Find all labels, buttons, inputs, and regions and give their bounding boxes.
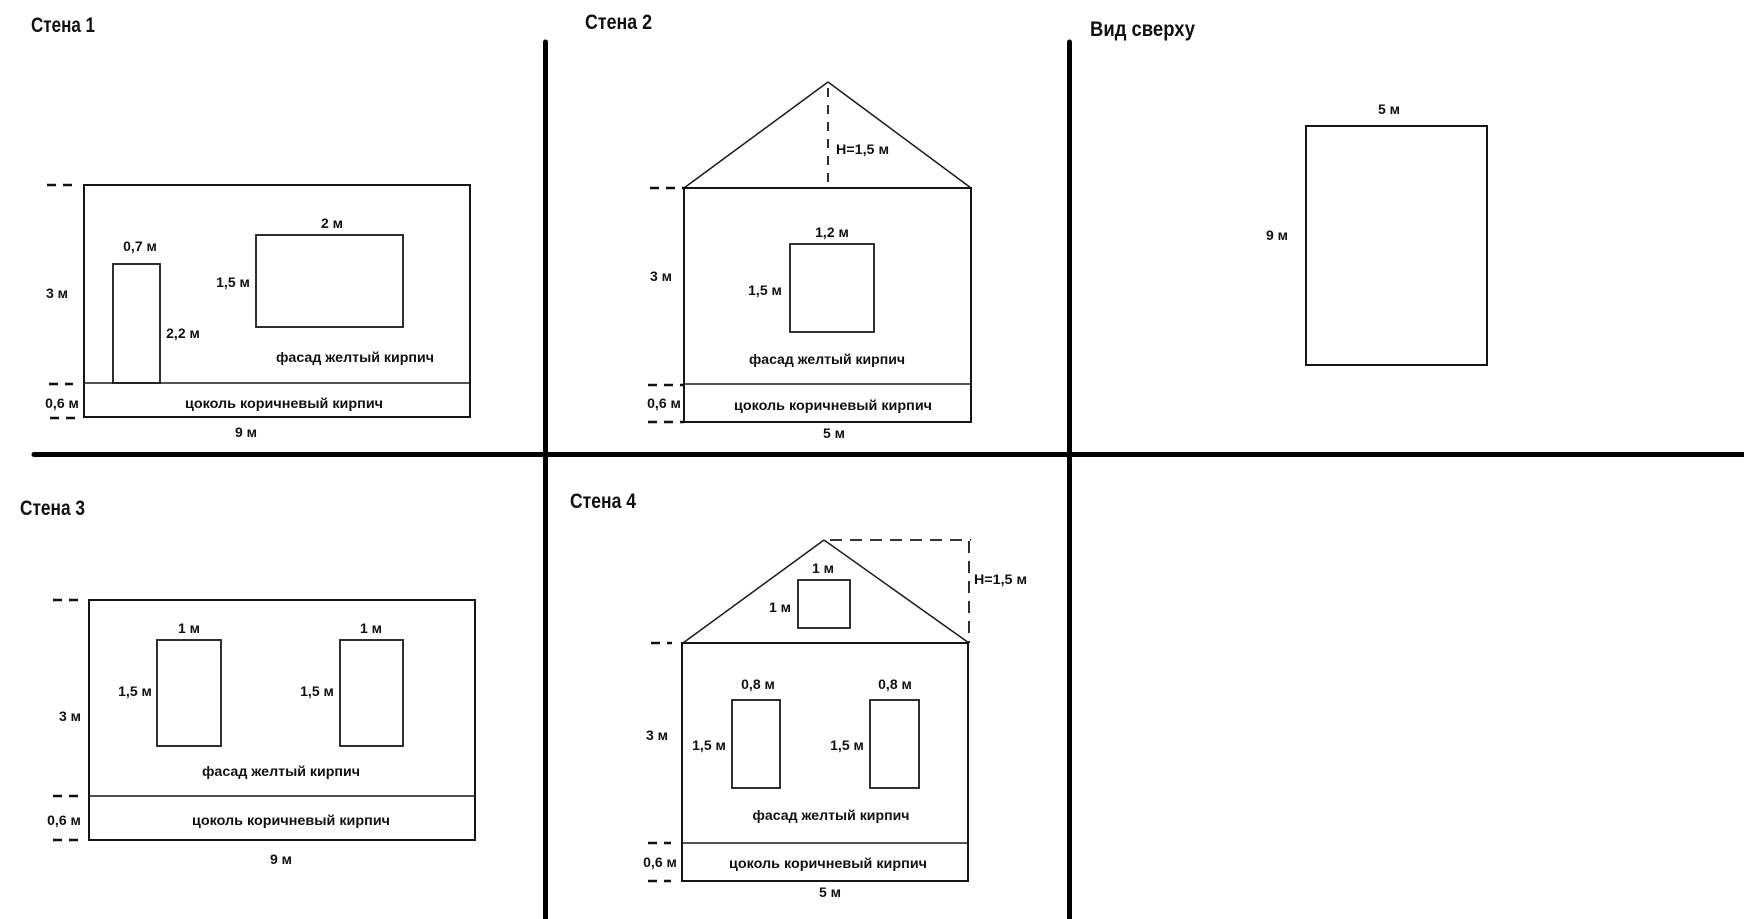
svg-text:5 м: 5 м xyxy=(823,425,845,441)
svg-text:2 м: 2 м xyxy=(321,215,343,231)
svg-text:0,6 м: 0,6 м xyxy=(47,812,81,828)
svg-text:1 м: 1 м xyxy=(812,560,834,576)
svg-text:Вид сверху: Вид сверху xyxy=(1090,18,1195,41)
svg-text:0,7 м: 0,7 м xyxy=(123,238,157,254)
svg-text:3 м: 3 м xyxy=(46,285,68,301)
svg-text:цоколь коричневый кирпич: цоколь коричневый кирпич xyxy=(192,812,390,828)
svg-text:0,6 м: 0,6 м xyxy=(643,854,677,870)
svg-text:Стена 2: Стена 2 xyxy=(585,11,652,34)
svg-text:3 м: 3 м xyxy=(646,727,668,743)
svg-text:0,6 м: 0,6 м xyxy=(647,395,681,411)
svg-text:фасад желтый кирпич: фасад желтый кирпич xyxy=(276,349,434,365)
svg-text:H=1,5 м: H=1,5 м xyxy=(836,141,889,157)
svg-text:цоколь коричневый кирпич: цоколь коричневый кирпич xyxy=(185,395,383,411)
svg-text:цоколь коричневый кирпич: цоколь коричневый кирпич xyxy=(734,397,932,413)
svg-text:1 м: 1 м xyxy=(178,620,200,636)
svg-text:5 м: 5 м xyxy=(1378,101,1400,117)
svg-text:5 м: 5 м xyxy=(819,884,841,900)
svg-text:3 м: 3 м xyxy=(59,708,81,724)
svg-text:0,8 м: 0,8 м xyxy=(741,676,775,692)
svg-text:9 м: 9 м xyxy=(1266,227,1288,243)
svg-text:цоколь коричневый кирпич: цоколь коричневый кирпич xyxy=(729,855,927,871)
svg-text:фасад желтый кирпич: фасад желтый кирпич xyxy=(753,807,910,823)
svg-text:2,2 м: 2,2 м xyxy=(166,325,200,341)
svg-text:9 м: 9 м xyxy=(270,851,292,867)
svg-text:1,5 м: 1,5 м xyxy=(748,282,782,298)
svg-text:фасад желтый кирпич: фасад желтый кирпич xyxy=(202,763,360,779)
svg-text:1,5 м: 1,5 м xyxy=(692,737,726,753)
svg-text:1,5 м: 1,5 м xyxy=(216,274,250,290)
svg-text:H=1,5 м: H=1,5 м xyxy=(974,571,1027,587)
svg-text:Стена 3: Стена 3 xyxy=(20,497,85,520)
svg-text:1 м: 1 м xyxy=(360,620,382,636)
svg-text:9 м: 9 м xyxy=(235,424,257,440)
svg-text:1,5 м: 1,5 м xyxy=(118,683,152,699)
svg-text:1 м: 1 м xyxy=(769,599,791,615)
svg-text:1,5 м: 1,5 м xyxy=(300,683,334,699)
svg-text:0,8 м: 0,8 м xyxy=(878,676,912,692)
svg-text:0,6 м: 0,6 м xyxy=(45,395,79,411)
svg-text:фасад желтый кирпич: фасад желтый кирпич xyxy=(749,351,905,367)
svg-text:Стена 1: Стена 1 xyxy=(31,14,95,37)
svg-text:Стена 4: Стена 4 xyxy=(570,490,636,513)
svg-text:1,5 м: 1,5 м xyxy=(830,737,864,753)
svg-text:1,2 м: 1,2 м xyxy=(815,224,849,240)
svg-text:3 м: 3 м xyxy=(650,268,672,284)
